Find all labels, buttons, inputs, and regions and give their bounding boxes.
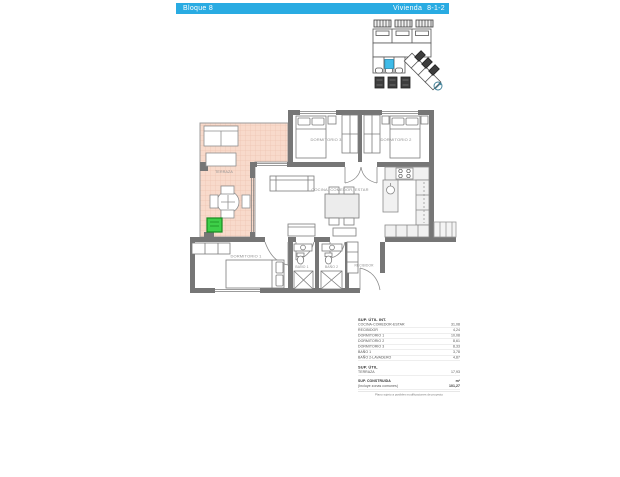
sliding-door-window xyxy=(257,164,287,166)
toilet xyxy=(325,256,331,264)
nightstand xyxy=(421,116,428,124)
living-furniture xyxy=(270,176,359,236)
wall xyxy=(250,167,255,178)
area-label: DORMITORIO 2 xyxy=(358,339,384,344)
construida-value-row: (Incluye zonas comunes) 101,27 xyxy=(358,384,460,390)
floor-plan: TERRAZA DORMITORIO 3 DORMITORIO 2 COCINA… xyxy=(0,0,620,406)
wall xyxy=(260,288,293,293)
area-value: 10,08 xyxy=(451,334,460,339)
loveseat xyxy=(288,224,315,236)
sink xyxy=(301,245,306,250)
cocina-comedor-estar-label: COCINA, COMEDOR, ESTAR xyxy=(311,187,368,192)
area-value: 8,61 xyxy=(453,339,460,344)
sink xyxy=(387,186,395,194)
wall xyxy=(345,288,360,293)
wardrobe xyxy=(347,242,358,273)
ac-unit-highlight xyxy=(207,218,222,232)
area-label: RECIBIDOR xyxy=(358,328,378,333)
pillow xyxy=(392,118,404,125)
wall xyxy=(314,237,330,242)
wall xyxy=(315,242,319,288)
dormitorio-1-furniture xyxy=(192,243,284,288)
bano-2-label: BAÑO 2 xyxy=(325,264,338,269)
wall xyxy=(385,237,434,242)
dormitorio-2-label: DORMITORIO 2 xyxy=(380,137,412,142)
coffee-table xyxy=(206,153,236,166)
door-dormitorios xyxy=(345,167,361,183)
keyplan-top-units xyxy=(373,29,431,43)
dormitorio-3-label: DORMITORIO 3 xyxy=(310,137,342,142)
nightstand xyxy=(382,116,389,124)
dormitorio-1-label: DORMITORIO 1 xyxy=(230,254,262,259)
sink xyxy=(330,245,335,250)
bano-1-label: BAÑO 1 xyxy=(295,264,308,269)
pillow xyxy=(276,262,283,273)
area-label: BAÑO 1 xyxy=(358,350,371,355)
area-label: COCINA-COMEDOR-ESTAR xyxy=(358,323,405,328)
entrance-door xyxy=(360,268,380,290)
area-value: 17,93 xyxy=(451,370,460,375)
wall xyxy=(358,115,362,162)
pillow xyxy=(312,118,324,125)
bed xyxy=(226,260,284,288)
kitchen xyxy=(383,167,429,237)
nightstand xyxy=(328,116,336,124)
stairs xyxy=(434,222,456,237)
construida-sublabel: (Incluye zonas comunes) xyxy=(358,384,398,389)
area-value: 4,24 xyxy=(453,328,460,333)
wall xyxy=(190,288,215,293)
area-label: DORMITORIO 1 xyxy=(358,334,384,339)
wall xyxy=(377,162,434,167)
keyplan-bottom-units xyxy=(373,57,405,73)
area-row: TERRAZA 17,93 xyxy=(358,370,460,376)
area-value: 31,08 xyxy=(451,323,460,328)
wall xyxy=(380,242,385,273)
wall xyxy=(250,232,255,237)
construida-value: 101,27 xyxy=(449,384,460,389)
disclaimer-note: Plano sujeto a posibles modificaciones d… xyxy=(358,392,460,398)
key-plan xyxy=(373,20,442,90)
toilet xyxy=(297,256,303,264)
chair xyxy=(242,195,250,208)
wall xyxy=(429,110,434,242)
pillow xyxy=(276,275,283,286)
chair xyxy=(210,195,218,208)
sofa xyxy=(270,176,314,191)
stove xyxy=(396,168,413,179)
wall xyxy=(336,110,382,115)
dining-table xyxy=(325,194,359,218)
wall xyxy=(287,162,345,167)
wall xyxy=(190,237,265,242)
area-value: 3,78 xyxy=(453,350,460,355)
area-value: 4,87 xyxy=(453,356,460,361)
area-label: DORMITORIO 3 xyxy=(358,345,384,350)
pillow xyxy=(298,118,310,125)
area-value: 8,33 xyxy=(453,345,460,350)
wall xyxy=(288,242,293,288)
wall xyxy=(250,162,257,167)
door-dormitorios xyxy=(361,167,377,183)
area-label: TERRAZA xyxy=(358,370,375,375)
pillow xyxy=(406,118,418,125)
recibidor-label: RECIBIDOR xyxy=(354,264,374,268)
tv-bench xyxy=(333,228,356,236)
wall xyxy=(434,237,456,242)
area-row: BAÑO 2-LAVADERO 4,87 xyxy=(358,356,460,362)
window xyxy=(215,290,260,292)
areas-table: SUP. ÚTIL INT. COCINA-COMEDOR-ESTAR 31,0… xyxy=(358,317,460,477)
kitchen-counter xyxy=(416,180,429,225)
wall xyxy=(288,110,293,167)
keyplan-carports xyxy=(374,20,433,27)
chair xyxy=(329,218,339,225)
recibidor-furniture xyxy=(347,242,358,273)
area-label: BAÑO 2-LAVADERO xyxy=(358,356,391,361)
chair xyxy=(344,218,354,225)
window xyxy=(382,112,418,114)
wardrobe xyxy=(192,243,230,254)
wall xyxy=(288,237,296,242)
highlighted-unit xyxy=(385,60,394,69)
window xyxy=(300,112,336,114)
chair xyxy=(221,210,234,218)
terraza-label: TERRAZA xyxy=(215,170,233,174)
chair xyxy=(221,186,234,194)
